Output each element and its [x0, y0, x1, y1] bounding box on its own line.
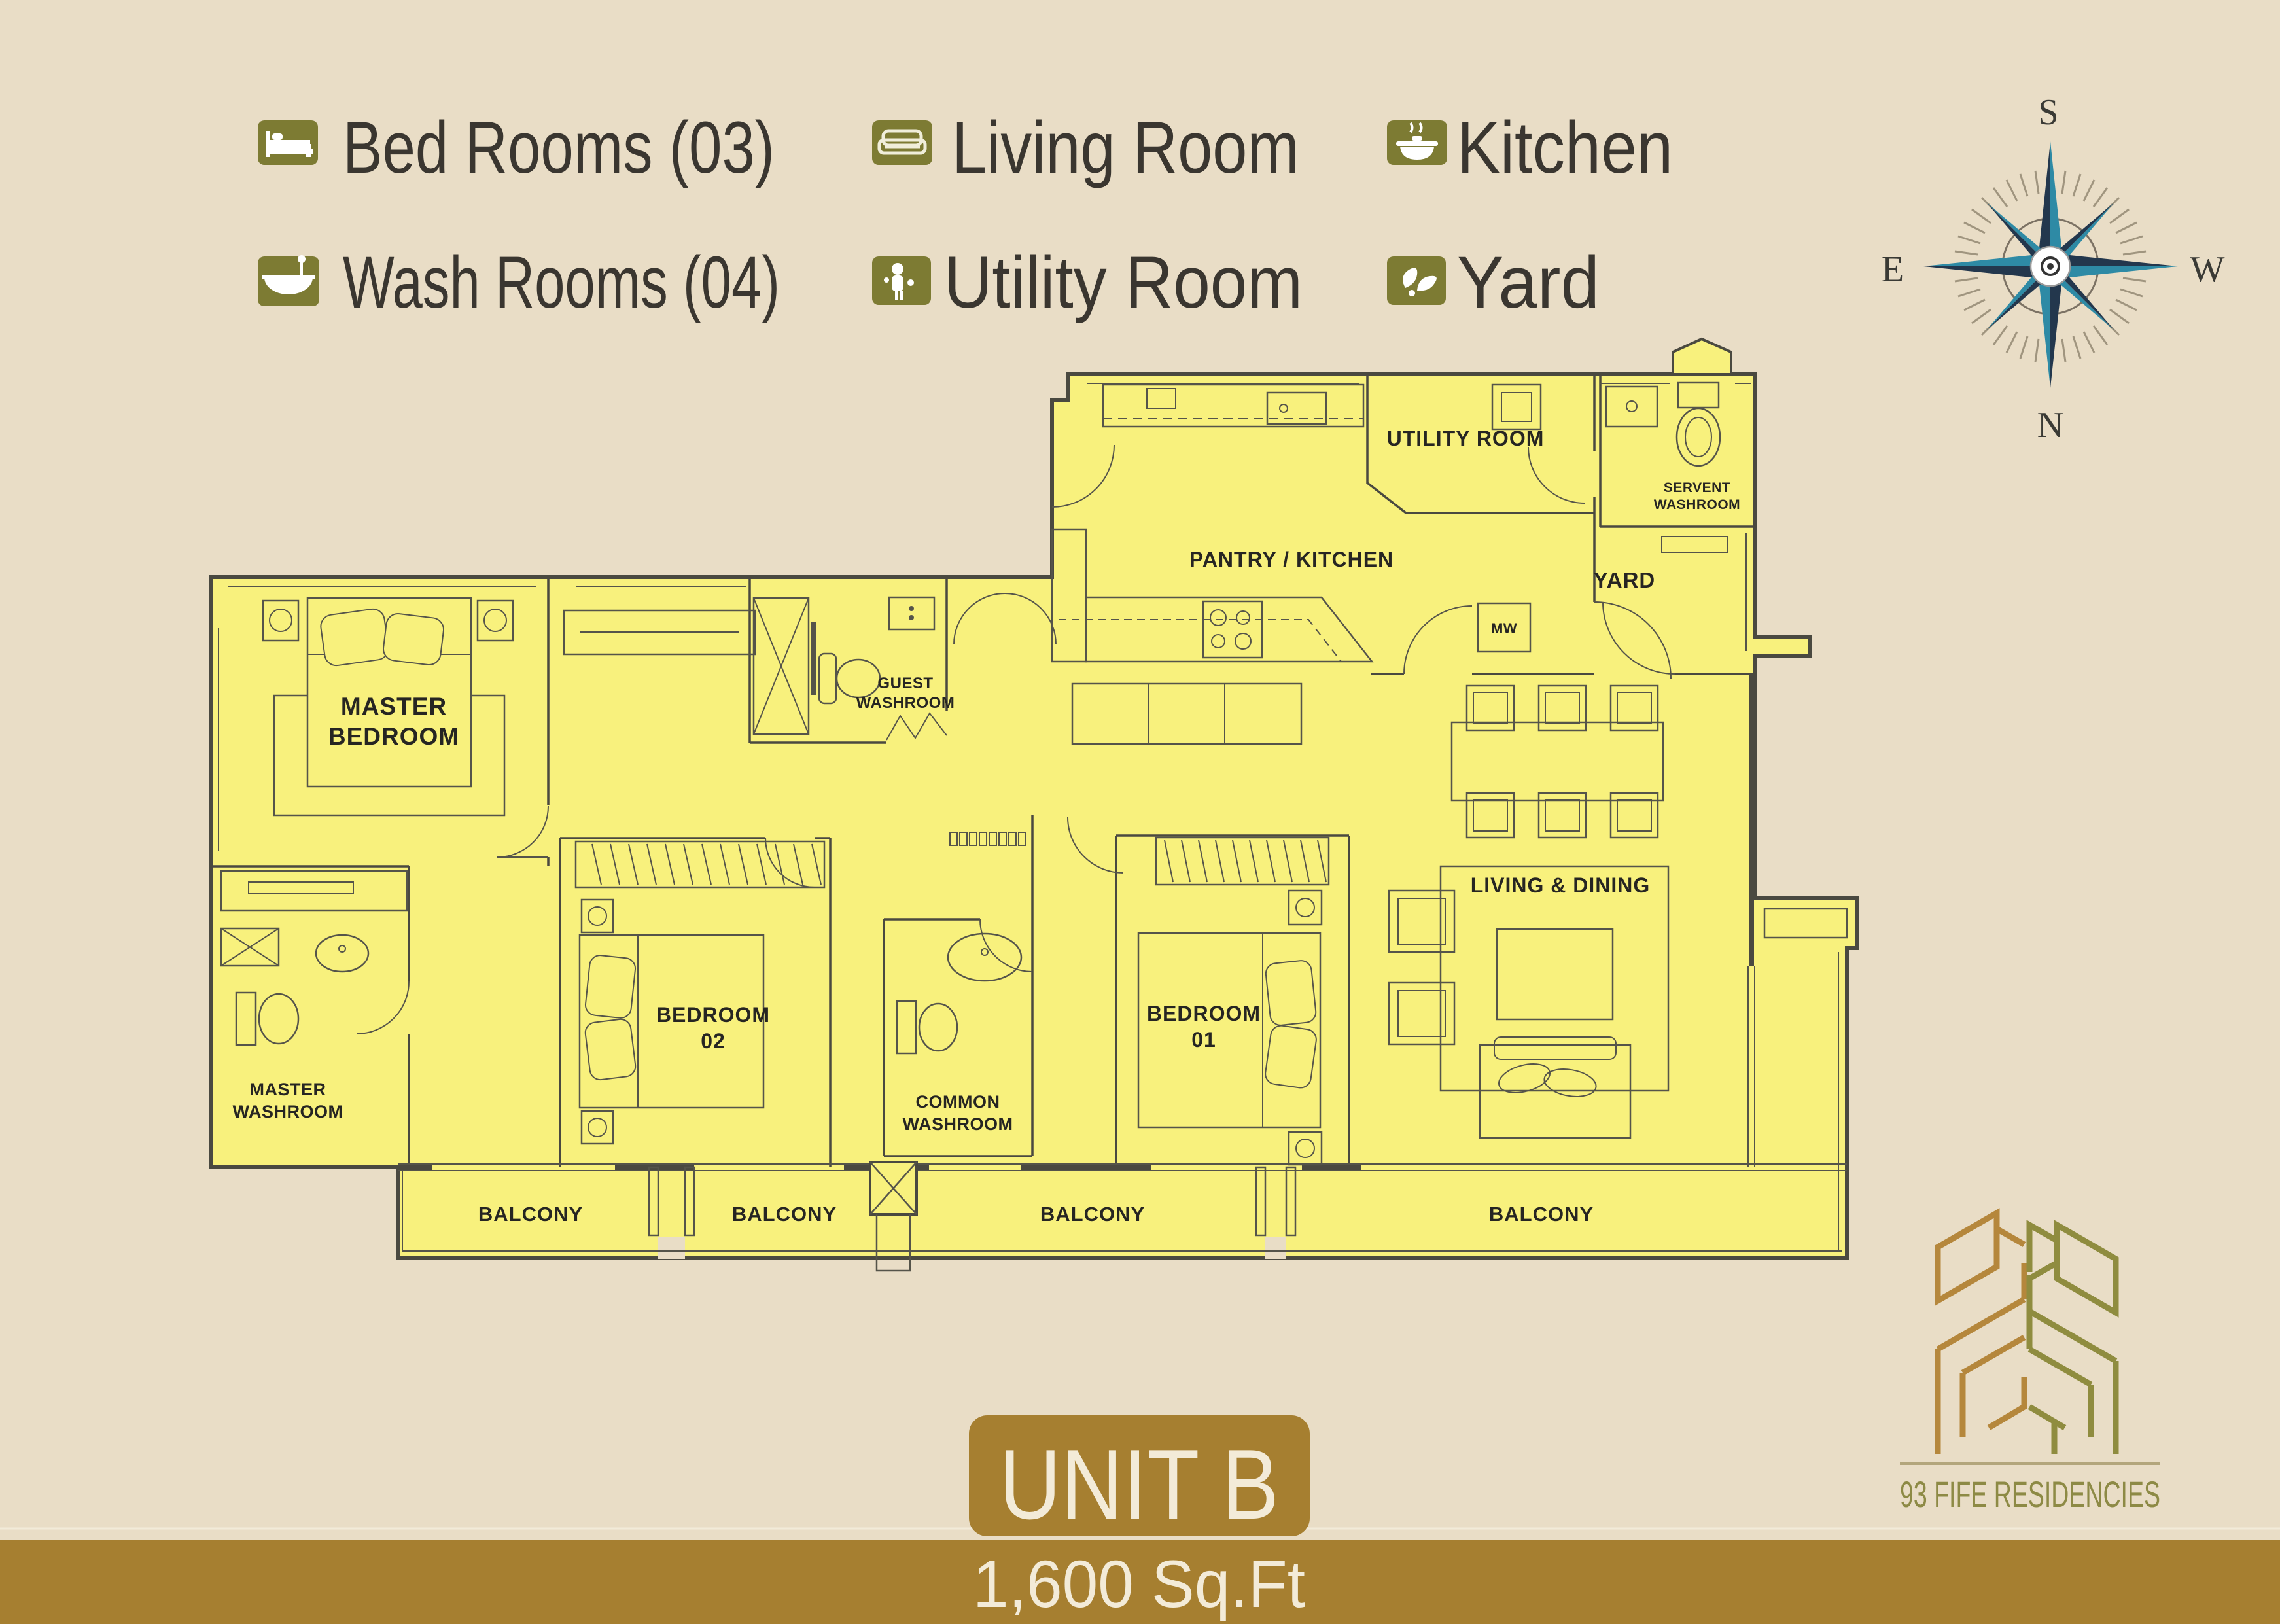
svg-text:Utility Room: Utility Room [944, 241, 1303, 323]
svg-text:WASHROOM: WASHROOM [903, 1114, 1013, 1134]
svg-text:BEDROOM: BEDROOM [1147, 1002, 1261, 1025]
svg-text:BALCONY: BALCONY [478, 1203, 583, 1226]
svg-text:SERVENT: SERVENT [1664, 480, 1730, 495]
svg-text:Bed Rooms (03): Bed Rooms (03) [343, 107, 775, 188]
svg-text:MASTER: MASTER [341, 693, 447, 720]
svg-text:WASHROOM: WASHROOM [1654, 497, 1740, 512]
svg-text:MASTER: MASTER [250, 1080, 326, 1099]
svg-text:BEDROOM: BEDROOM [328, 723, 459, 750]
svg-text:E: E [1882, 249, 1904, 290]
svg-text:COMMON: COMMON [916, 1092, 1000, 1112]
svg-text:YARD: YARD [1594, 568, 1655, 592]
svg-text:Living Room: Living Room [952, 107, 1299, 188]
svg-text:Wash Rooms (04): Wash Rooms (04) [343, 241, 780, 323]
svg-text:W: W [2190, 249, 2225, 290]
svg-text:MW: MW [1491, 620, 1517, 637]
svg-text:Yard: Yard [1457, 241, 1600, 323]
svg-text:S: S [2038, 92, 2058, 133]
svg-text:02: 02 [701, 1029, 726, 1053]
svg-text:BALCONY: BALCONY [1489, 1203, 1594, 1226]
svg-text:BALCONY: BALCONY [732, 1203, 837, 1226]
svg-text:GUEST: GUEST [877, 675, 933, 692]
svg-text:WASHROOM: WASHROOM [856, 694, 955, 712]
svg-text:01: 01 [1191, 1028, 1216, 1051]
svg-text:WASHROOM: WASHROOM [233, 1102, 343, 1121]
svg-text:93 FIFE RESIDENCIES: 93 FIFE RESIDENCIES [1900, 1474, 2160, 1515]
svg-text:N: N [2037, 405, 2063, 446]
svg-text:BEDROOM: BEDROOM [656, 1003, 770, 1027]
svg-text:PANTRY / KITCHEN: PANTRY / KITCHEN [1189, 548, 1394, 571]
svg-text:UNIT B: UNIT B [999, 1429, 1279, 1540]
svg-text:BALCONY: BALCONY [1040, 1203, 1145, 1226]
svg-text:LIVING & DINING: LIVING & DINING [1471, 874, 1651, 897]
svg-text:Kitchen: Kitchen [1457, 107, 1673, 188]
svg-text:1,600 Sq.Ft: 1,600 Sq.Ft [973, 1547, 1305, 1621]
svg-text:UTILITY ROOM: UTILITY ROOM [1387, 427, 1545, 450]
